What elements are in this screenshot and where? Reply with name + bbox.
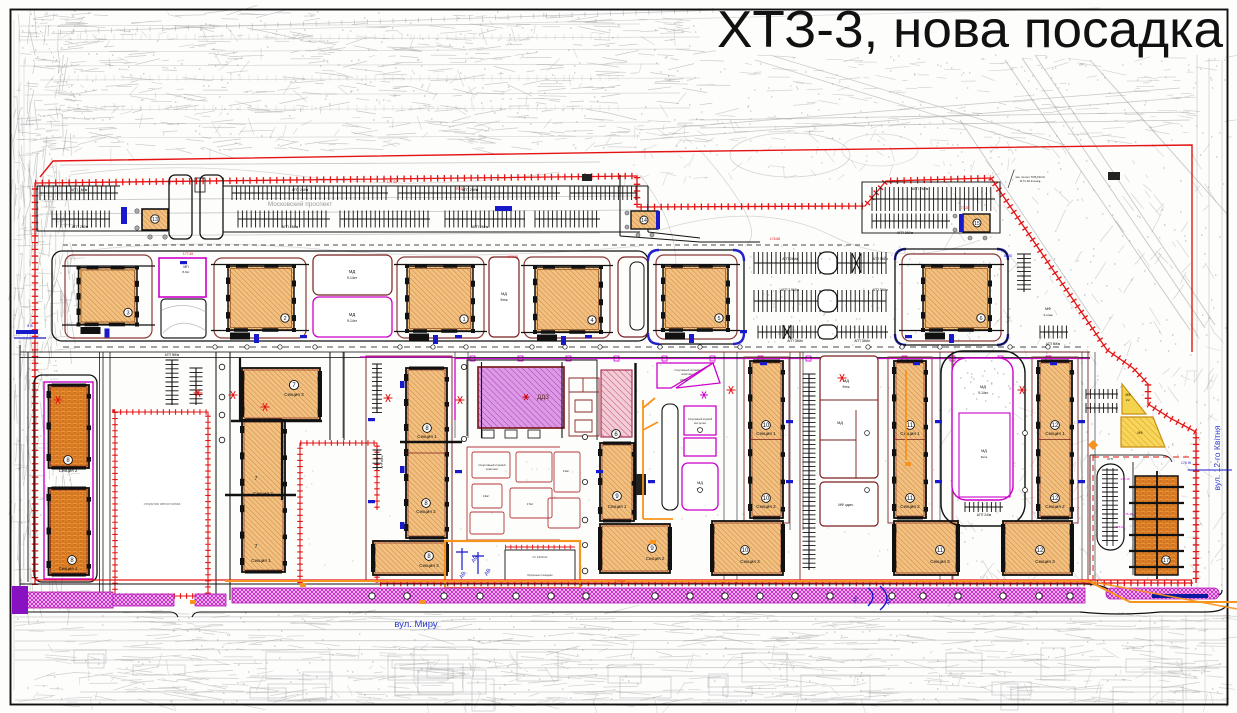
svg-text:1: 1 (462, 317, 465, 323)
svg-text:13м²: 13м² (483, 494, 489, 498)
svg-text:АГП 1М/м: АГП 1М/м (282, 225, 299, 229)
svg-text:АГП 3М/м: АГП 3М/м (380, 456, 384, 469)
svg-text:АГП 3М/м: АГП 3М/м (872, 288, 888, 292)
svg-text:МФ: МФ (1137, 431, 1143, 435)
svg-text:12: 12 (1052, 423, 1059, 429)
svg-text:14: 14 (641, 218, 647, 224)
svg-text:8-9эт: 8-9эт (182, 270, 190, 274)
svg-text:АГП 2М/м: АГП 2М/м (72, 225, 89, 229)
svg-text:97.28: 97.28 (456, 187, 465, 191)
svg-text:15: 15 (974, 221, 980, 227)
svg-text:АГП 2М/м: АГП 2М/м (912, 187, 929, 191)
svg-text:Секция 1: Секция 1 (1045, 431, 1065, 436)
svg-text:13м²: 13м² (563, 469, 569, 473)
svg-text:12: 12 (1037, 548, 1044, 554)
svg-text:176.16: 176.16 (1120, 477, 1130, 481)
svg-text:ХТЗ-3, нова посадка: ХТЗ-3, нова посадка (717, 1, 1223, 59)
svg-text:17м²: 17м² (527, 502, 533, 506)
svg-text:13: 13 (152, 217, 158, 223)
svg-text:АГП 2,5М/м: АГП 2,5М/м (781, 288, 800, 292)
svg-text:Секция 3: Секция 3 (1035, 559, 1055, 564)
svg-text:Секция 3: Секция 3 (740, 559, 760, 564)
svg-text:МД: МД (980, 384, 986, 389)
svg-text:9-14эт: 9-14эт (347, 319, 357, 323)
svg-text:Секция 2: Секция 2 (646, 556, 665, 561)
svg-text:Московский проспект: Московский проспект (268, 200, 332, 208)
svg-text:вул. 12-го Квітня: вул. 12-го Квітня (1212, 425, 1222, 490)
svg-text:открытая автостоянка: открытая автостоянка (144, 502, 181, 506)
svg-text:7: 7 (255, 544, 258, 550)
svg-text:МФ: МФ (1125, 393, 1131, 397)
svg-text:Секция 1: Секция 1 (251, 558, 271, 563)
svg-text:АГП 9М/м: АГП 9М/м (165, 353, 180, 357)
svg-text:240м²: 240м² (680, 378, 688, 382)
svg-text:Секция 1: Секция 1 (417, 434, 437, 439)
svg-text:86.30: 86.30 (1004, 254, 1013, 258)
svg-text:МД: МД (697, 481, 703, 485)
svg-text:3: 3 (126, 311, 129, 317)
svg-text:ДДЗ: ДДЗ (537, 395, 549, 401)
svg-text:176.48: 176.48 (1123, 512, 1133, 516)
svg-text:10: 10 (763, 423, 770, 429)
svg-text:Секция 2: Секция 2 (1045, 504, 1065, 509)
svg-text:11: 11 (907, 423, 914, 429)
svg-text:Спортивный игровой: Спортивный игровой (688, 418, 713, 421)
svg-text:Секция 2: Секция 2 (900, 504, 920, 509)
svg-text:МД: МД (501, 291, 507, 296)
svg-text:2эт: 2эт (1126, 398, 1131, 402)
svg-text:АГП 2М/м: АГП 2М/м (782, 257, 798, 261)
svg-text:АГП 2М/м: АГП 2М/м (292, 188, 309, 192)
svg-text:176 Ж: 176 Ж (1181, 461, 1192, 465)
svg-text:АГП 2М/м: АГП 2М/м (472, 225, 489, 229)
svg-text:Секция 2: Секция 2 (59, 468, 78, 473)
svg-text:2: 2 (283, 316, 286, 322)
svg-text:177.28: 177.28 (959, 206, 969, 210)
svg-text:Мусорные площадки: Мусорные площадки (527, 573, 553, 577)
svg-text:АГП 1М/м: АГП 1М/м (71, 188, 88, 192)
svg-text:11: 11 (907, 496, 914, 502)
svg-text:176.92: 176.92 (1115, 525, 1125, 529)
svg-text:МФ здан.: МФ здан. (838, 503, 853, 507)
svg-text:17: 17 (1163, 558, 1169, 564)
svg-text:h= 1220 м²: h= 1220 м² (533, 555, 548, 559)
svg-text:МП: МП (183, 265, 189, 269)
svg-text:Секция 1: Секция 1 (608, 504, 627, 509)
svg-text:комплекс: комплекс (486, 467, 499, 471)
svg-text:177.28: 177.28 (508, 255, 518, 259)
svg-text:АГП 3М/м: АГП 3М/м (787, 339, 803, 343)
svg-text:зал детям: зал детям (694, 422, 706, 425)
svg-text:177.50: 177.50 (387, 180, 397, 184)
svg-text:5: 5 (717, 316, 720, 322)
svg-text:АГП 3М/м: АГП 3М/м (897, 231, 914, 235)
svg-text:Секция 2: Секция 2 (416, 509, 436, 514)
svg-text:7: 7 (255, 476, 258, 482)
svg-text:11: 11 (937, 548, 944, 554)
svg-text:Секция 1: Секция 1 (756, 431, 776, 436)
svg-text:10: 10 (763, 496, 770, 502)
svg-text:МД: МД (349, 312, 355, 317)
svg-text:0 Б: 0 Б (27, 323, 33, 328)
svg-text:10: 10 (742, 548, 749, 554)
svg-text:9-14эт: 9-14эт (347, 276, 357, 280)
svg-text:Секция 3: Секция 3 (419, 563, 439, 568)
svg-text:МФ: МФ (1045, 307, 1051, 311)
svg-text:Спортивный игровой: Спортивный игровой (674, 368, 700, 372)
svg-text:Секция 3: Секция 3 (930, 559, 950, 564)
svg-text:12: 12 (1052, 496, 1059, 502)
svg-text:176.92: 176.92 (615, 579, 625, 583)
svg-text:4: 4 (590, 318, 593, 324)
svg-text:АГП 2М/м: АГП 2М/м (462, 188, 479, 192)
svg-text:МД: МД (981, 449, 987, 453)
svg-text:3-этаж: 3-этаж (1043, 313, 1052, 317)
svg-text:9этж: 9этж (842, 385, 850, 389)
svg-text:6: 6 (979, 316, 982, 322)
svg-text:АГП 24/м: АГП 24/м (977, 513, 992, 517)
svg-text:176.88: 176.88 (770, 237, 780, 241)
svg-text:МД: МД (837, 421, 843, 425)
svg-text:7: 7 (292, 382, 296, 389)
svg-text:М-Тя-84 Еленка: М-Тя-84 Еленка (1020, 179, 1041, 183)
svg-text:Секция 1: Секция 1 (59, 566, 78, 571)
svg-text:Секция 2: Секция 2 (756, 504, 776, 509)
svg-text:9этж: 9этж (981, 455, 988, 459)
svg-text:Секция 1: Секция 1 (900, 431, 920, 436)
svg-text:Секция 3: Секция 3 (284, 392, 304, 397)
svg-text:АГП: АГП (1107, 457, 1113, 461)
svg-text:177.45: 177.45 (183, 252, 193, 256)
svg-text:МД: МД (349, 269, 355, 274)
svg-text:комплекс: комплекс (681, 373, 693, 376)
svg-text:АГП 3М/м: АГП 3М/м (854, 339, 870, 343)
svg-text:9этж: 9этж (500, 298, 508, 302)
svg-text:вул. Миру: вул. Миру (394, 619, 438, 630)
svg-text:9-14эт: 9-14эт (978, 391, 988, 395)
